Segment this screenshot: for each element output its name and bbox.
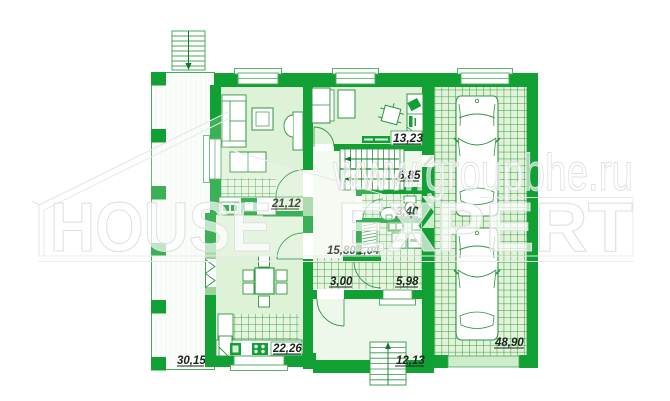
svg-text:EXPERT: EXPERT (337, 188, 633, 266)
svg-text:30,15: 30,15 (177, 355, 206, 367)
svg-text:5,98: 5,98 (396, 276, 419, 288)
svg-text:3,00: 3,00 (330, 276, 353, 288)
svg-text:HOUSE: HOUSE (50, 188, 272, 266)
svg-text:12,13: 12,13 (396, 355, 425, 367)
svg-text:22,26: 22,26 (272, 343, 302, 355)
svg-text:13,23: 13,23 (393, 131, 423, 145)
svg-text:48,90: 48,90 (494, 337, 524, 349)
